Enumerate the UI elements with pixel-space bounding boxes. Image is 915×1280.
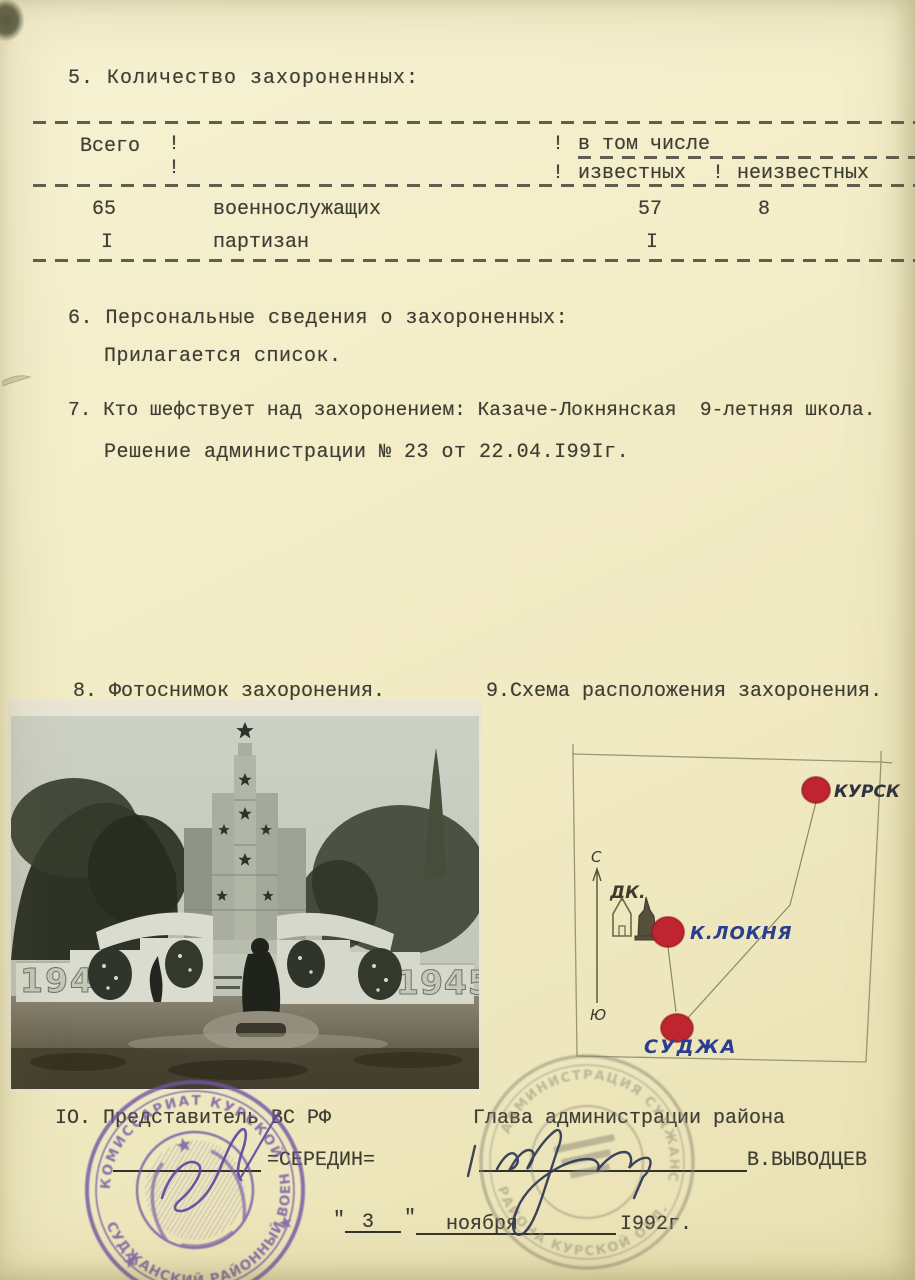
house-icon: [613, 898, 631, 936]
cell-category: партизан: [213, 230, 309, 255]
section6-heading: 6. Персональные сведения о захороненных:: [68, 306, 568, 331]
map-label-kursk: КУРСК: [834, 782, 901, 802]
cell-category: военнослужащих: [213, 197, 381, 222]
section6-body: Прилагается список.: [104, 344, 342, 369]
table-col-known: известных: [578, 161, 686, 186]
compass-north-label: С: [591, 848, 602, 866]
scanned-document-page: 5. Количество захороненных: Всего ! ! ! …: [0, 0, 915, 1280]
right-signatory-name: В.ВЫВОДЦЕВ: [747, 1148, 867, 1173]
table-sep: !: [168, 156, 180, 181]
svg-text:АДМИНИСТРАЦИЯ СУДЖАНСКОГО: АДМИНИСТРАЦИЯ СУДЖАНСКОГО: [462, 1042, 712, 1185]
map-label-klokня: К.ЛОКНЯ: [690, 923, 792, 944]
section7-line1: 7. Кто шефствует над захоронением: Казач…: [68, 398, 875, 422]
table-sep: !: [552, 161, 564, 186]
photo-image: 1941 1945: [10, 716, 482, 1089]
cell-total: 65: [92, 197, 116, 222]
stamp-right-arc-top: АДМИНИСТРАЦИЯ СУДЖАНСКОГО: [462, 1042, 712, 1185]
date-day-line: [345, 1231, 401, 1233]
table-sep: !: [168, 132, 180, 157]
table-col-total: Всего: [80, 134, 140, 159]
compass-south-label: Ю: [590, 1006, 606, 1024]
compass: С Ю: [590, 848, 606, 1024]
route-lines: [668, 802, 816, 1020]
section5-heading: 5. Количество захороненных:: [68, 66, 419, 91]
table-rule-mid: [33, 184, 915, 187]
dk-label: ДК.: [609, 883, 646, 903]
military-commissariat-stamp: КОМИССАРИАТ КУРСКОЙ ОБЛ. СУДЖАНСКИЙ РАЙО…: [70, 1072, 320, 1280]
section7-line2: Решение администрации № 23 от 22.04.I99I…: [104, 440, 629, 465]
paper-crease: [2, 376, 30, 386]
cell-known: 57: [638, 197, 662, 222]
photo-year-right: 1945: [396, 963, 482, 1002]
cell-total: I: [101, 230, 113, 255]
table-rule-incl: [578, 156, 915, 159]
location-scheme: С Ю ДК. КУРСК К.ЛОКНЯ СУДЖА: [548, 740, 915, 1080]
date-open-quote: ": [333, 1208, 345, 1233]
administration-stamp: АДМИНИСТРАЦИЯ СУДЖАНСКОГО РАЙОНА КУРСКОЙ…: [462, 1042, 712, 1280]
burial-photo: 1941 1945: [8, 700, 482, 1092]
table-col-incl: в том числе: [578, 132, 710, 157]
cell-known: I: [646, 230, 658, 255]
paper-stain: [0, 0, 64, 66]
table-rule-bottom: [33, 259, 915, 262]
table-sep: !: [552, 132, 564, 157]
table-col-unknown: неизвестных: [737, 161, 869, 186]
section9-heading: 9.Схема расположения захоронения.: [486, 679, 882, 704]
map-dots: [652, 777, 830, 1042]
table-sep: !: [712, 161, 724, 186]
table-rule-top: [33, 121, 915, 124]
date-close-quote: ": [404, 1206, 416, 1231]
cell-unknown: 8: [758, 197, 770, 222]
house-door: [619, 926, 625, 936]
